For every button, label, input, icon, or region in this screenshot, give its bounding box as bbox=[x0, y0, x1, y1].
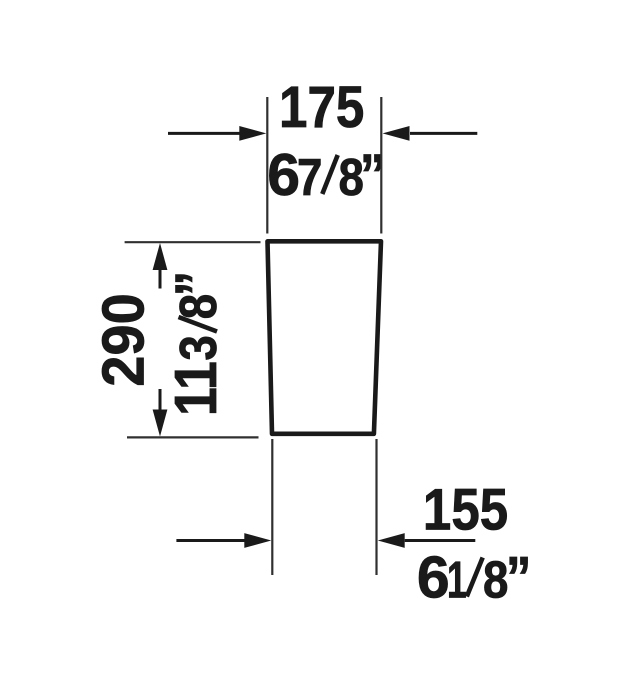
svg-text:8: 8 bbox=[483, 552, 508, 609]
svg-text:290: 290 bbox=[91, 293, 157, 387]
svg-text:155: 155 bbox=[423, 477, 508, 542]
svg-text:175: 175 bbox=[279, 73, 364, 139]
svg-text:6: 6 bbox=[267, 142, 300, 208]
svg-text:6: 6 bbox=[417, 545, 450, 611]
svg-text:”: ” bbox=[506, 545, 532, 610]
svg-text:1: 1 bbox=[447, 552, 467, 609]
svg-text:1138”: 1138” bbox=[163, 271, 229, 416]
svg-text:7: 7 bbox=[297, 149, 322, 206]
